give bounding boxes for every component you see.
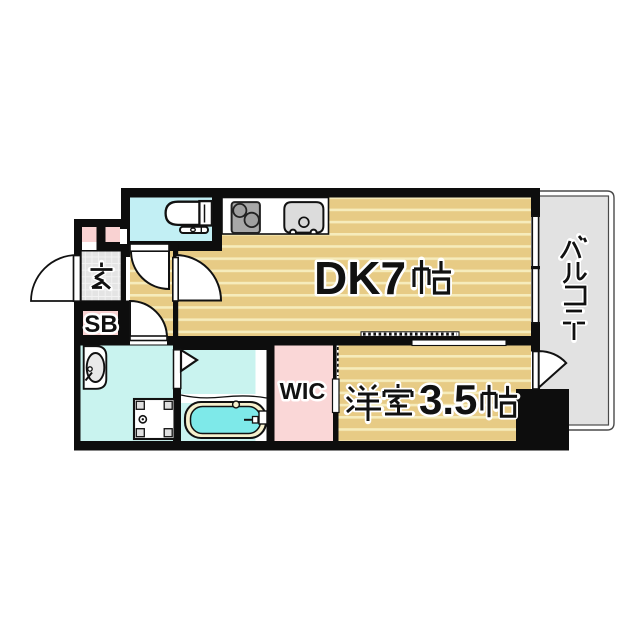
svg-text:SB: SB	[84, 311, 117, 338]
svg-text:DK7: DK7	[314, 252, 406, 304]
svg-text:3.5: 3.5	[419, 376, 477, 423]
svg-text:WIC: WIC	[280, 378, 326, 404]
